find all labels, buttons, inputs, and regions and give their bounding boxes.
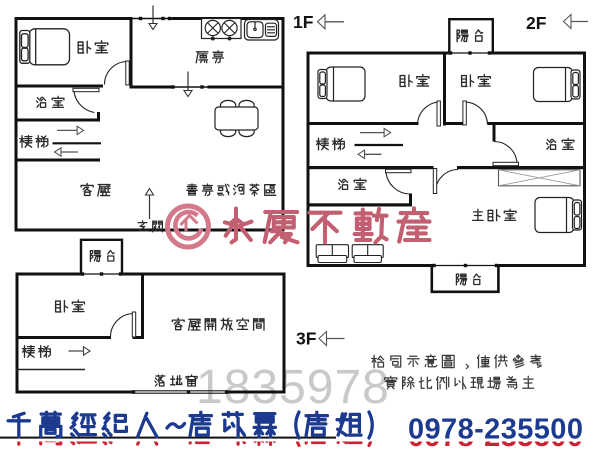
- svg-text:3F: 3F: [296, 329, 317, 349]
- svg-text:1F: 1F: [293, 12, 314, 32]
- svg-text:2F: 2F: [526, 13, 547, 33]
- svg-text:0978-235500: 0978-235500: [408, 414, 583, 446]
- svg-text:1835978: 1835978: [196, 361, 390, 414]
